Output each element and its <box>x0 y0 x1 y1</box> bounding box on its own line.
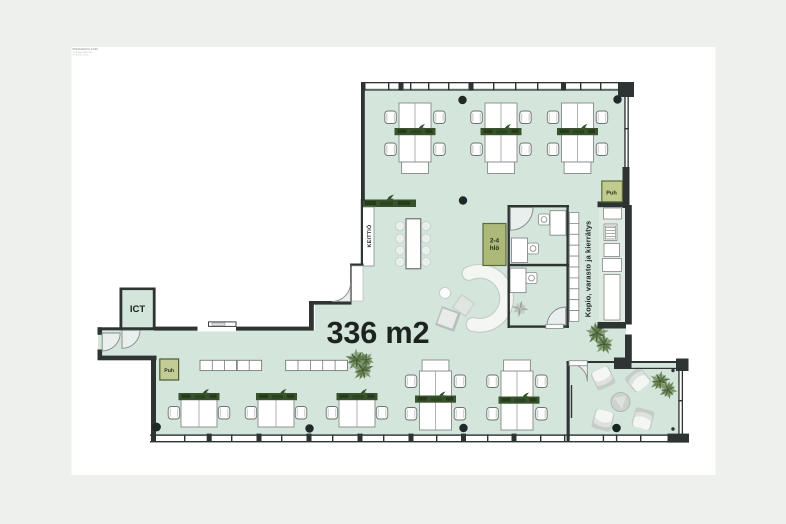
svg-text:336 m2: 336 m2 <box>327 315 430 350</box>
svg-text:KEITTIÖ: KEITTIÖ <box>366 224 373 247</box>
svg-text:Puh: Puh <box>164 368 174 374</box>
svg-text:hlö: hlö <box>490 245 500 252</box>
svg-text:ICT: ICT <box>130 304 146 315</box>
svg-text:Kopio, varasto ja kierrätys: Kopio, varasto ja kierrätys <box>584 221 593 317</box>
svg-text:2-4: 2-4 <box>490 238 500 245</box>
svg-text:Helsinki 1.krs: Helsinki 1.krs <box>73 54 89 57</box>
svg-text:Puh: Puh <box>606 190 617 197</box>
